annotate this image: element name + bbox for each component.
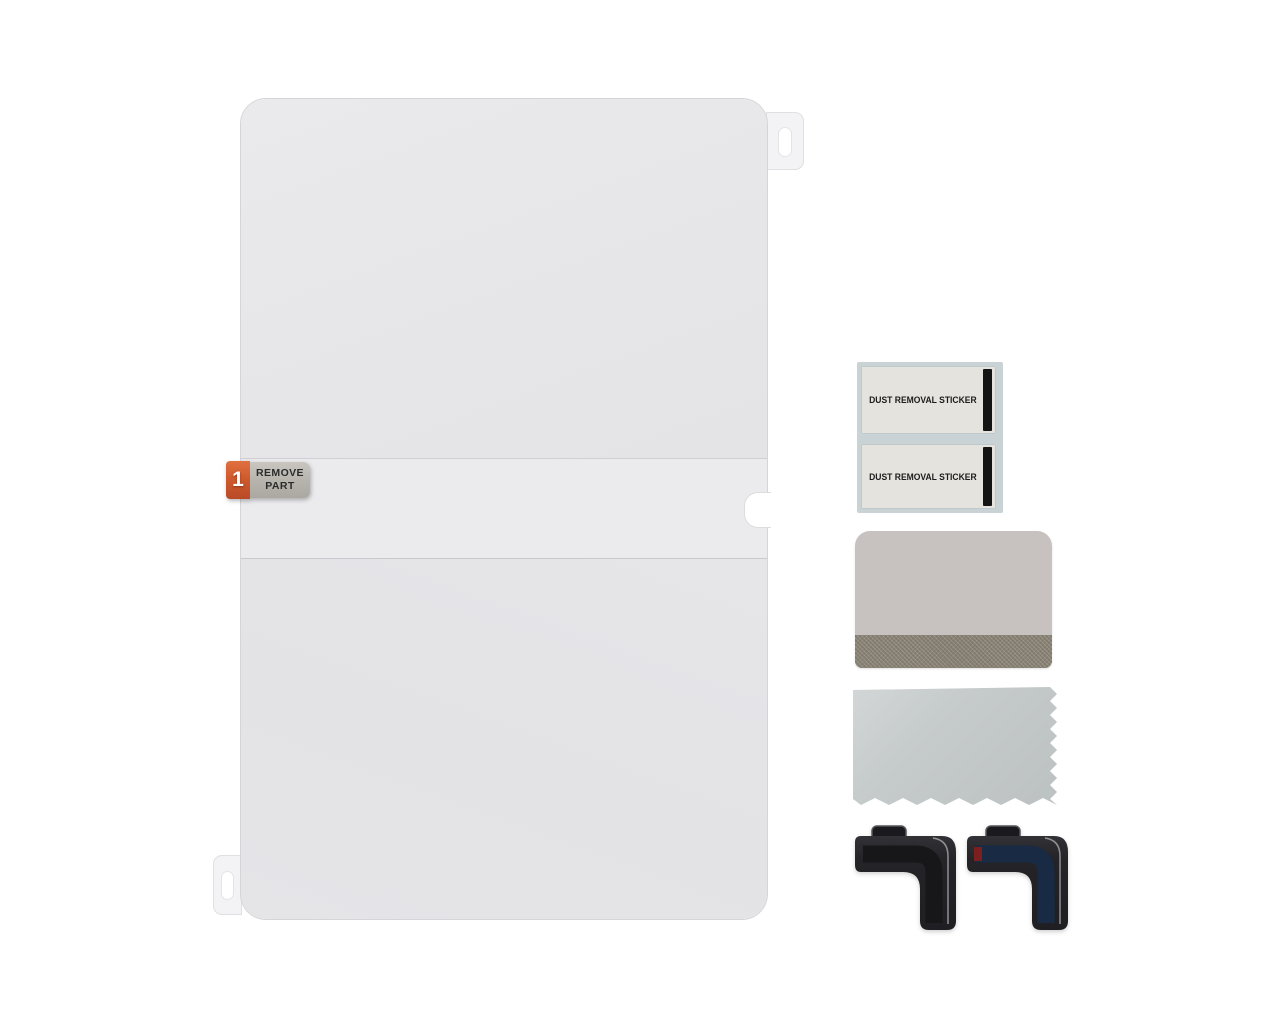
sticker-grip-stripe (983, 447, 992, 506)
film-pull-tab-top (766, 112, 804, 170)
dust-removal-sticker-2-label: DUST REMOVAL STICKER (869, 472, 988, 482)
dust-removal-sticker-sheet: DUST REMOVAL STICKER DUST REMOVAL STICKE… (857, 362, 1003, 513)
dust-removal-sticker-1: DUST REMOVAL STICKER (862, 367, 995, 433)
film-edge-notch (744, 492, 771, 528)
remove-part-sticker: 1 REMOVE PART (226, 461, 310, 499)
pull-tab-slot (778, 127, 792, 157)
dust-removal-sticker-1-label: DUST REMOVAL STICKER (869, 395, 988, 405)
corner-guide-left (853, 824, 958, 932)
sticker-grip-stripe (983, 369, 992, 431)
microfiber-cloth (853, 687, 1057, 805)
product-photo: 1 REMOVE PART DUST REMOVAL STICKER DUST … (0, 0, 1280, 1024)
screen-protector-film (240, 98, 768, 920)
film-top-layer (241, 99, 767, 458)
remove-part-line1: REMOVE (256, 467, 304, 480)
remove-part-label: REMOVE PART (250, 462, 310, 498)
guide-red-mark (974, 847, 982, 861)
pull-tab-slot (221, 871, 234, 900)
step-number-badge: 1 (226, 461, 250, 499)
squeegee-card (855, 531, 1052, 668)
corner-guide-right (965, 824, 1070, 932)
film-middle-band (241, 458, 767, 559)
squeegee-felt-edge (855, 635, 1052, 668)
film-bottom-layer (241, 559, 767, 920)
film-pull-tab-bottom (213, 855, 242, 915)
dust-removal-sticker-2: DUST REMOVAL STICKER (862, 445, 995, 508)
remove-part-line2: PART (265, 480, 294, 493)
